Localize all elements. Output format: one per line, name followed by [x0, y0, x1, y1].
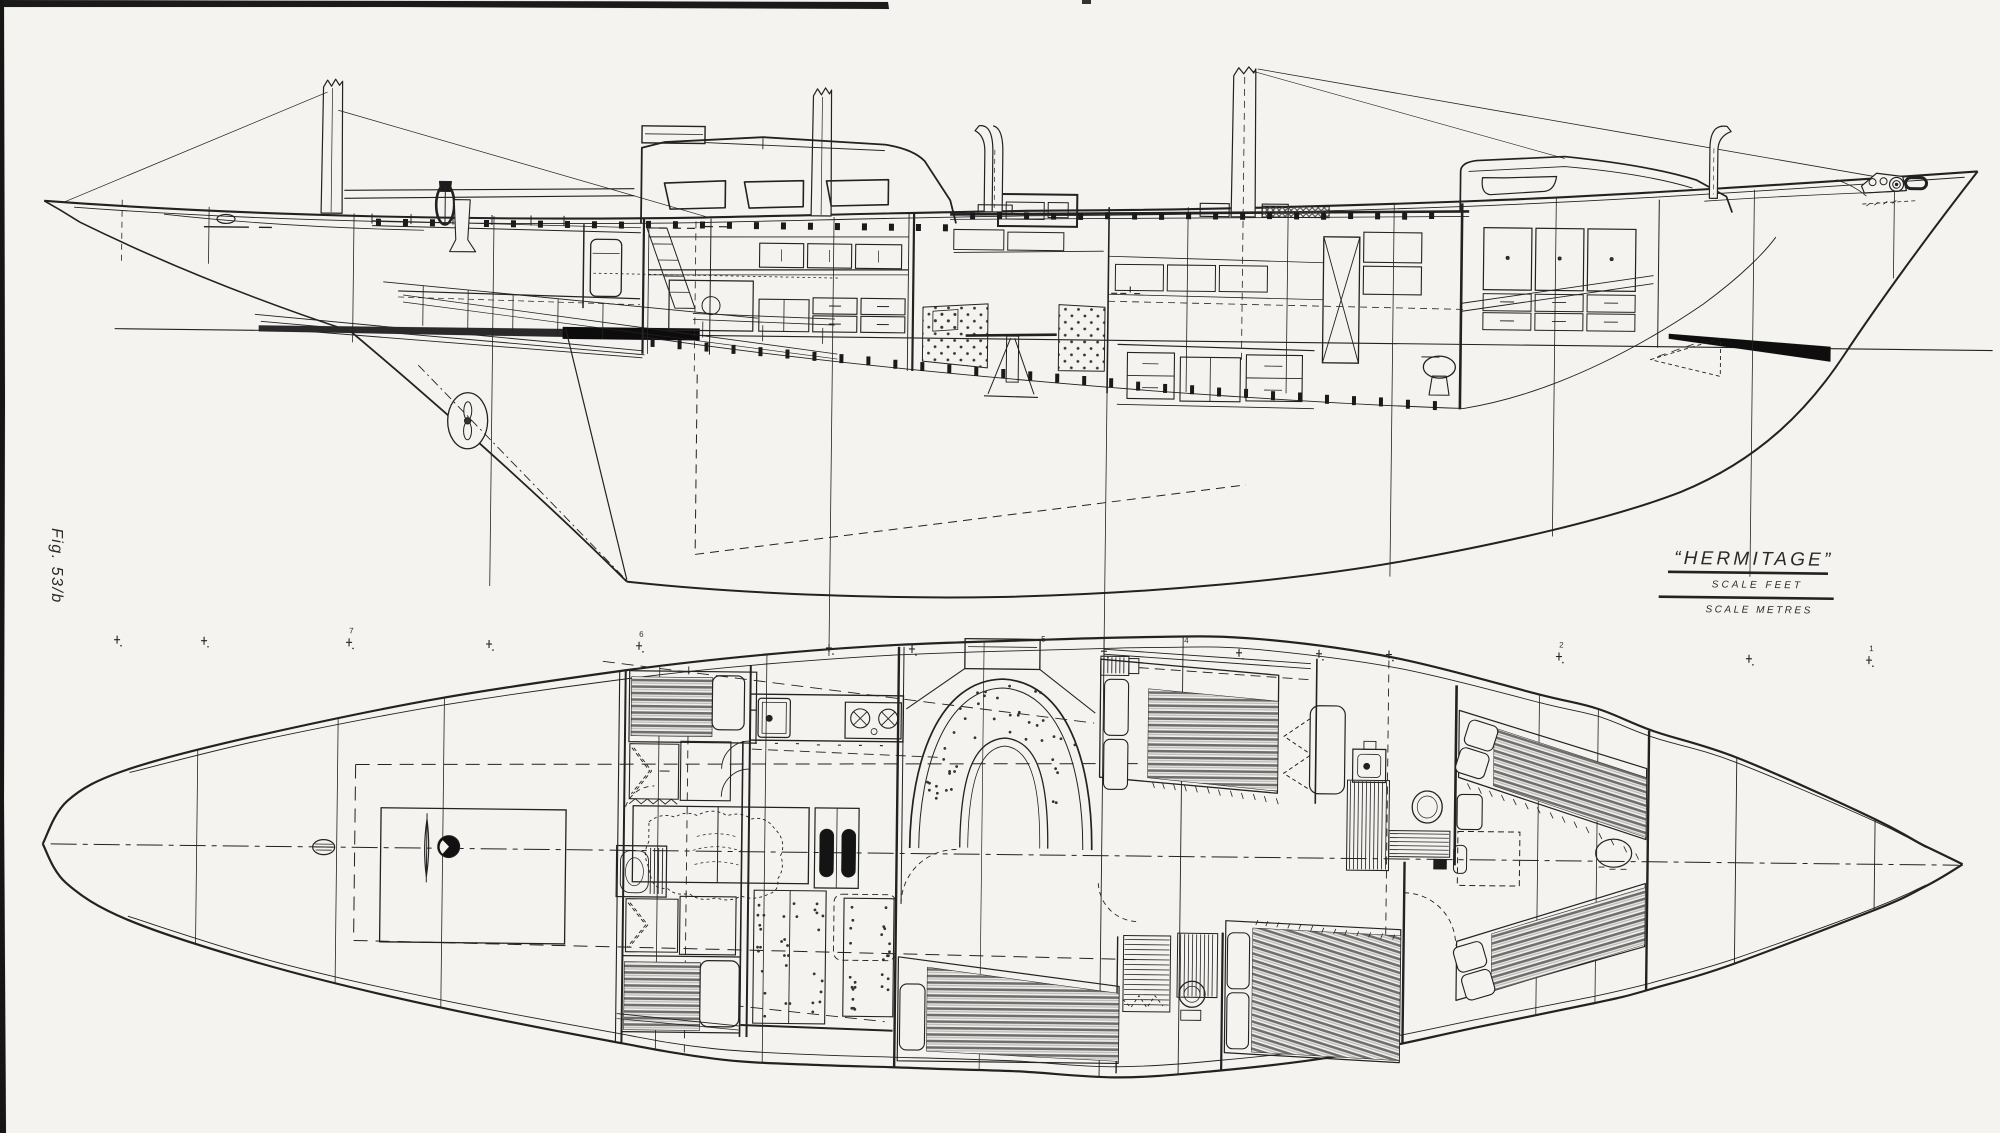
svg-text:7: 7 [349, 626, 354, 635]
svg-text:SCALE FEET: SCALE FEET [1712, 579, 1803, 591]
svg-text:2: 2 [1559, 641, 1564, 650]
svg-text:Fig. 53/b: Fig. 53/b [48, 528, 65, 604]
svg-text:1: 1 [1869, 644, 1874, 653]
svg-text:“HERMITAGE”: “HERMITAGE” [1674, 548, 1834, 571]
svg-text:6: 6 [639, 630, 644, 639]
svg-text:SCALE METRES: SCALE METRES [1705, 604, 1812, 616]
